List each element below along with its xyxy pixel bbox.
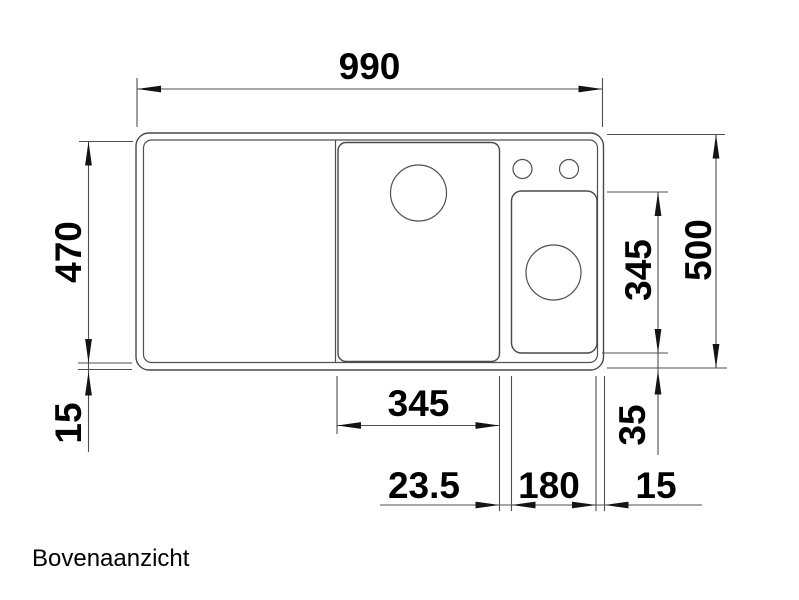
arrowhead-up bbox=[85, 372, 92, 396]
sink-inner-rim bbox=[144, 140, 598, 363]
dim-label-990: 990 bbox=[339, 46, 401, 87]
dim-overall-width: 990 bbox=[137, 46, 603, 127]
arrowhead-up bbox=[655, 371, 662, 395]
technical-drawing-page: 990 470 15 345 35 bbox=[0, 0, 799, 600]
arrowhead-right bbox=[579, 86, 603, 93]
dim-label-35: 35 bbox=[612, 404, 653, 445]
dim-left-bottom-rim: 15 bbox=[48, 372, 92, 444]
dim-label-345-right: 345 bbox=[618, 239, 659, 301]
dim-label-23-5: 23.5 bbox=[388, 465, 460, 506]
dim-label-15-right: 15 bbox=[635, 465, 676, 506]
main-bowl-drain-hole bbox=[391, 165, 447, 221]
main-bowl-outline bbox=[338, 143, 500, 362]
dim-label-15-left: 15 bbox=[48, 402, 89, 443]
dim-bowl-gap: 23.5 bbox=[380, 465, 512, 508]
dim-label-470: 470 bbox=[48, 221, 89, 283]
arrowhead-up bbox=[655, 192, 662, 216]
sink-top-view bbox=[136, 133, 604, 370]
arrowhead-down bbox=[655, 329, 662, 353]
arrowhead-left bbox=[605, 502, 629, 509]
arrowhead-up bbox=[713, 135, 720, 159]
small-bowl-drain-hole bbox=[526, 245, 581, 300]
arrowhead-left bbox=[137, 86, 161, 93]
drawing-canvas: 990 470 15 345 35 bbox=[0, 0, 799, 600]
dim-small-bowl-bottom-offset: 35 bbox=[612, 371, 661, 446]
dim-label-345-bottom: 345 bbox=[388, 383, 450, 424]
arrowhead-down bbox=[713, 344, 720, 368]
sink-outer-outline bbox=[136, 133, 604, 370]
view-caption: Bovenaanzicht bbox=[32, 545, 190, 572]
arrowhead-right bbox=[476, 502, 500, 509]
dim-small-bowl-width: 180 bbox=[512, 376, 597, 511]
tap-hole-right bbox=[560, 160, 579, 179]
tap-hole-left bbox=[513, 160, 532, 179]
dim-label-500: 500 bbox=[678, 219, 719, 281]
dim-label-180: 180 bbox=[518, 465, 580, 506]
arrowhead-right bbox=[476, 422, 500, 429]
arrowhead-left bbox=[337, 422, 361, 429]
arrowhead-down bbox=[85, 339, 92, 363]
small-bowl-outline bbox=[512, 191, 598, 353]
arrowhead-up bbox=[85, 142, 92, 166]
